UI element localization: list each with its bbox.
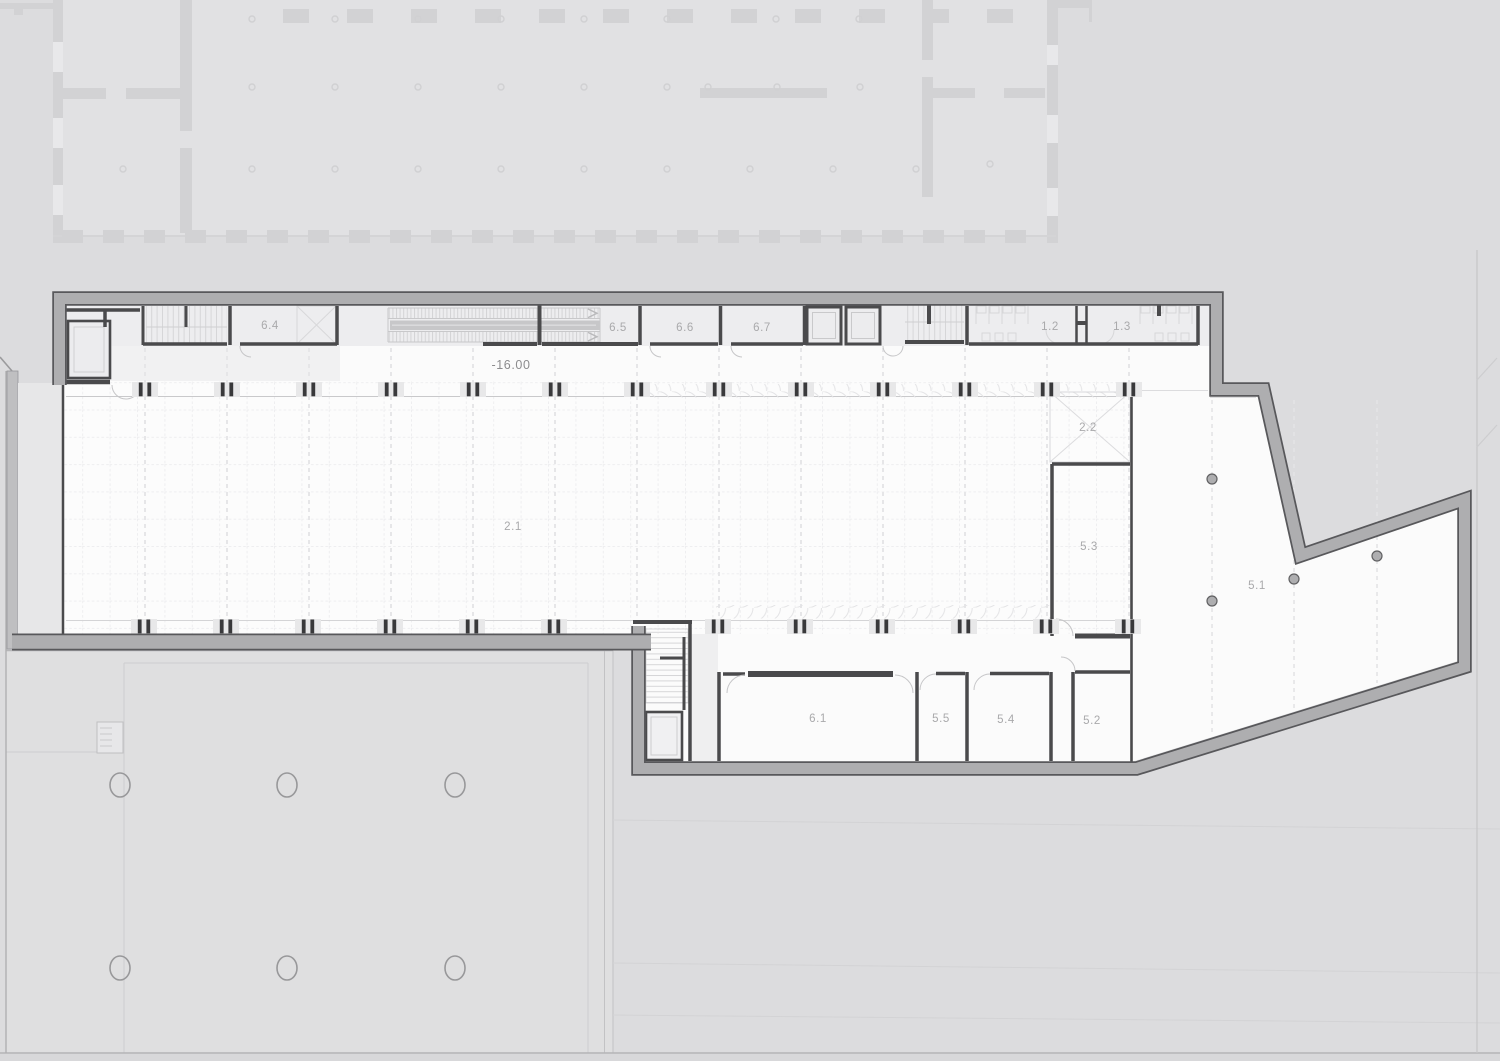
pilaster	[870, 382, 896, 397]
room-label-6-5: 6.5	[609, 322, 627, 334]
room-label-2-2: 2.2	[1079, 422, 1097, 434]
equipment-box	[97, 722, 123, 753]
pilaster	[624, 382, 650, 397]
stairs-south-icon	[646, 629, 688, 703]
floor-plan-page: 6.4 6.5 6.6 6.7 1.2 1.3 2.1 2.2 5.3 5.1 …	[0, 0, 1500, 1061]
room-label-6-6: 6.6	[676, 322, 694, 334]
west-retaining-wall	[7, 371, 18, 649]
room-label-6-1: 6.1	[809, 713, 827, 725]
west-areaway	[18, 383, 62, 635]
pilaster	[296, 382, 322, 397]
pilaster	[213, 619, 239, 634]
room-label-5-5: 5.5	[932, 713, 950, 725]
room-label-1-2: 1.2	[1041, 321, 1059, 333]
pilaster	[295, 619, 321, 634]
stairs-north-icon	[905, 300, 964, 341]
corridor-stair-block	[692, 622, 718, 762]
pilaster	[131, 619, 157, 634]
site-courtyard-area	[6, 650, 613, 1053]
pilaster	[1116, 382, 1142, 397]
escalator-icon	[388, 308, 600, 342]
pilaster	[951, 619, 977, 634]
pilaster	[706, 382, 732, 397]
pilaster	[788, 382, 814, 397]
floor-plan-drawing: 6.4 6.5 6.6 6.7 1.2 1.3 2.1 2.2 5.3 5.1 …	[0, 0, 1500, 1061]
pilaster	[705, 619, 731, 634]
room-label-6-7: 6.7	[753, 322, 771, 334]
door-swing-strip-bottom	[716, 605, 1054, 619]
pilaster	[541, 619, 567, 634]
top-room-band-floor	[66, 305, 1210, 346]
street-strip	[0, 1054, 1500, 1061]
elevator-west-icon	[68, 321, 110, 378]
pilaster	[869, 619, 895, 634]
room-label-1-3: 1.3	[1113, 321, 1131, 333]
pilaster	[460, 382, 486, 397]
room-label-5-4: 5.4	[997, 714, 1015, 726]
pilaster	[542, 382, 568, 397]
pilaster	[1115, 619, 1141, 634]
elevator-south-icon	[646, 712, 682, 760]
room-label-5-2: 5.2	[1083, 715, 1101, 727]
pilaster	[459, 619, 485, 634]
pilaster	[1033, 619, 1059, 634]
pilaster	[1034, 382, 1060, 397]
room-label-5-3: 5.3	[1080, 541, 1098, 553]
level-marker: -16.00	[491, 358, 530, 372]
pilaster	[377, 619, 403, 634]
pilaster	[952, 382, 978, 397]
pilaster	[378, 382, 404, 397]
pilaster	[214, 382, 240, 397]
room-label-6-4: 6.4	[261, 320, 279, 332]
faint-upper-building-plan	[0, 0, 1092, 243]
room-label-2-1: 2.1	[504, 521, 522, 533]
pilaster	[787, 619, 813, 634]
pilaster	[132, 382, 158, 397]
room-label-5-1: 5.1	[1248, 580, 1266, 592]
